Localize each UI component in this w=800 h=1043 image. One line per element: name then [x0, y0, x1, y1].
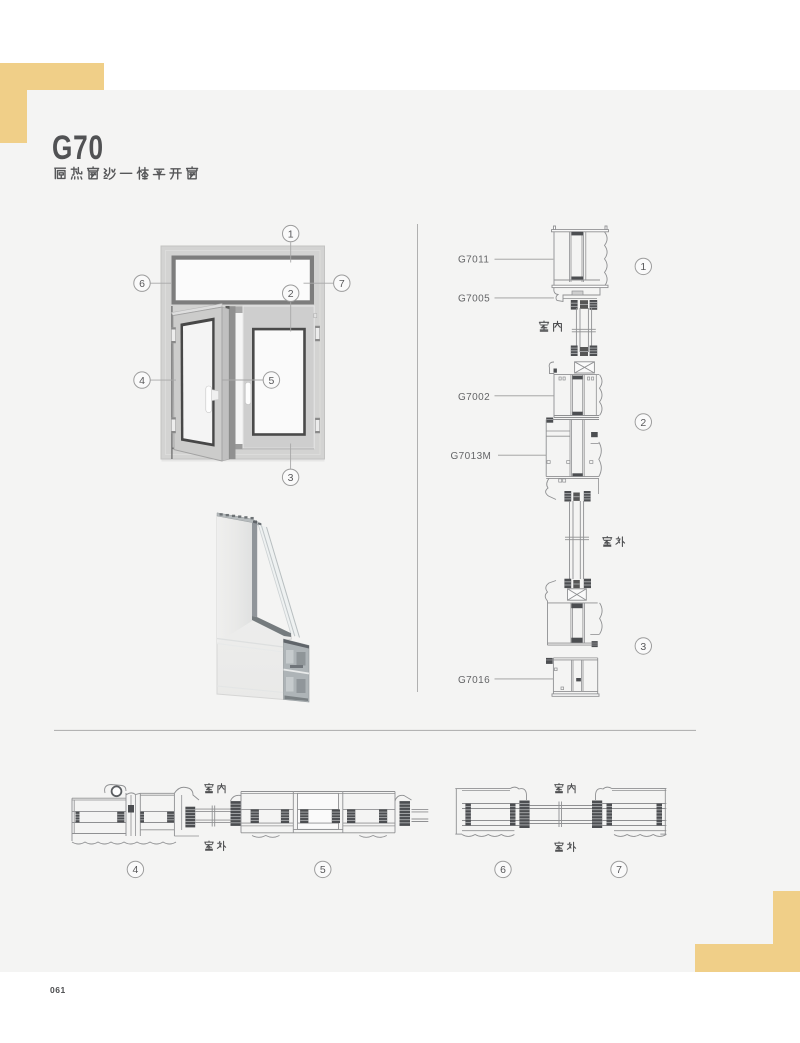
svg-text:7: 7 [339, 278, 345, 290]
svg-text:G7002: G7002 [458, 392, 490, 403]
svg-text:5: 5 [268, 375, 274, 387]
svg-text:2: 2 [288, 288, 294, 300]
svg-text:3: 3 [640, 641, 646, 653]
svg-text:4: 4 [139, 375, 145, 387]
svg-text:5: 5 [320, 864, 326, 876]
svg-text:6: 6 [500, 864, 506, 876]
svg-text:G7005: G7005 [458, 294, 490, 305]
svg-text:3: 3 [288, 472, 294, 484]
svg-text:G7011: G7011 [458, 255, 489, 266]
svg-text:2: 2 [640, 417, 646, 429]
svg-text:4: 4 [132, 864, 138, 876]
svg-text:6: 6 [139, 278, 145, 290]
svg-text:G7016: G7016 [458, 675, 490, 686]
svg-text:1: 1 [288, 228, 294, 240]
svg-text:G7013M: G7013M [451, 451, 492, 462]
svg-text:7: 7 [616, 864, 622, 876]
svg-text:1: 1 [640, 261, 646, 273]
